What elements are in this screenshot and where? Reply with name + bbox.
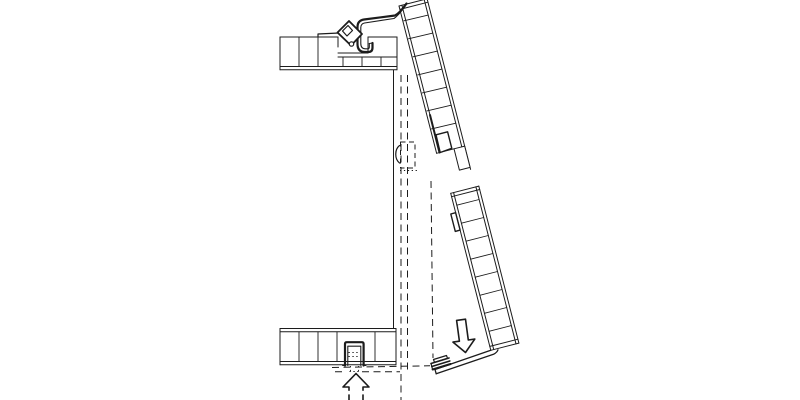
upper-panel-left-outer bbox=[399, 6, 437, 153]
lower-panel-bottom-cap bbox=[491, 343, 519, 350]
hinge-hook-tip-cap bbox=[369, 43, 372, 44]
up-arrow bbox=[343, 374, 369, 400]
hinge-hook-outer bbox=[358, 4, 407, 53]
upper-panel bbox=[399, 0, 471, 169]
actuator-dashed-box bbox=[396, 142, 418, 171]
upper-panel-joint-tongue bbox=[454, 146, 470, 170]
section-drawing bbox=[0, 0, 800, 400]
sill-bracket-inner bbox=[348, 346, 361, 365]
flap-hook-cap bbox=[431, 364, 433, 370]
hinge-clamp-curl bbox=[349, 42, 353, 46]
upper-panel-left-inner bbox=[402, 5, 430, 115]
top-slab-short-ribs bbox=[343, 57, 381, 67]
open-flap-projection-line bbox=[431, 181, 433, 358]
sill-bracket-hidden-h bbox=[349, 353, 361, 357]
closed-position-dashes bbox=[332, 70, 433, 400]
lower-panel-right-inner bbox=[476, 187, 516, 344]
hinge-assembly bbox=[318, 4, 407, 53]
upper-panel-rungs bbox=[404, 15, 456, 129]
up-arrow-dash-gap-left bbox=[348, 391, 350, 395]
bottom-slab bbox=[280, 329, 396, 365]
top-slab-ribs bbox=[299, 37, 318, 67]
actuator-handle-arc bbox=[396, 146, 400, 164]
lower-panel-joint-notch bbox=[451, 213, 460, 232]
lower-panel-bottom-cap-inner bbox=[490, 339, 518, 346]
lower-panel-right-outer bbox=[479, 186, 519, 343]
flap-bottom-profile bbox=[431, 350, 498, 374]
panel-joint bbox=[436, 132, 470, 232]
up-arrow-icon bbox=[343, 374, 369, 400]
flap-bottom-bar-left-cap bbox=[435, 370, 436, 374]
sill-projection-dash-1 bbox=[332, 366, 430, 368]
lower-panel-top-cap-inner bbox=[452, 190, 480, 197]
drawing-canvas bbox=[0, 0, 800, 400]
down-arrow-icon bbox=[453, 319, 475, 352]
down-arrow bbox=[453, 319, 475, 352]
hinge-shim-plate bbox=[318, 33, 339, 37]
up-arrow-dash-gap-right bbox=[362, 391, 364, 395]
top-slab bbox=[280, 37, 397, 70]
lower-panel-top-cap bbox=[451, 186, 479, 193]
